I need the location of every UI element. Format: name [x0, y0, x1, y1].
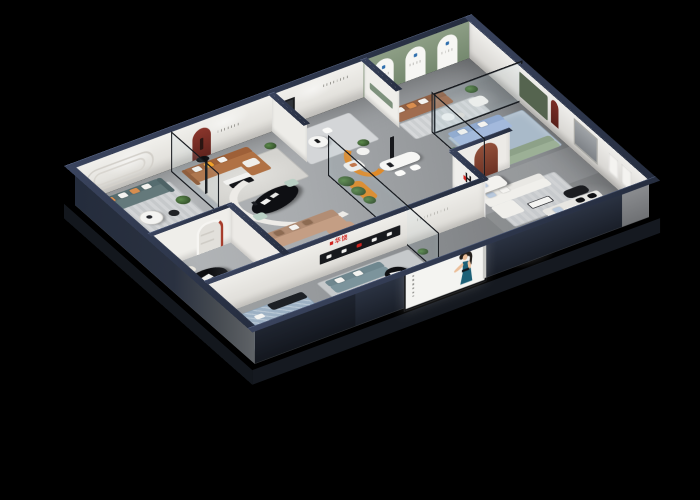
rail-item: [326, 254, 331, 259]
shelf-line: [201, 230, 214, 237]
brand-logo-square: [330, 241, 333, 246]
pillow: [273, 230, 285, 237]
arch-board-text: [441, 48, 453, 55]
mini-poster: [609, 152, 619, 180]
rail-item: [342, 248, 347, 253]
table-decor: [145, 215, 153, 220]
pillow: [288, 224, 300, 231]
niche-figurine: [200, 138, 203, 151]
rail-item: [387, 231, 392, 236]
mint-chair: [252, 212, 269, 221]
pillow: [352, 270, 364, 277]
white-chair: [409, 164, 422, 171]
narrow-maroon-arch: [551, 98, 559, 129]
rail-item-red: [357, 243, 362, 248]
arch-board-text: [410, 60, 422, 67]
standing-sculpture: [390, 136, 394, 159]
poster-vertical-text: [412, 275, 414, 297]
pillow: [334, 277, 346, 284]
showroom-render: 华饶 H 华饶: [0, 0, 700, 500]
white-tray: [254, 313, 266, 319]
arch-board-logo: [414, 53, 417, 58]
arch-board-logo: [446, 41, 449, 46]
arch-board-logo: [382, 65, 385, 70]
white-chair: [394, 169, 407, 176]
rail-item: [372, 237, 377, 242]
pillow: [302, 219, 314, 226]
shelf-line: [201, 238, 214, 245]
side-table: [166, 209, 181, 218]
